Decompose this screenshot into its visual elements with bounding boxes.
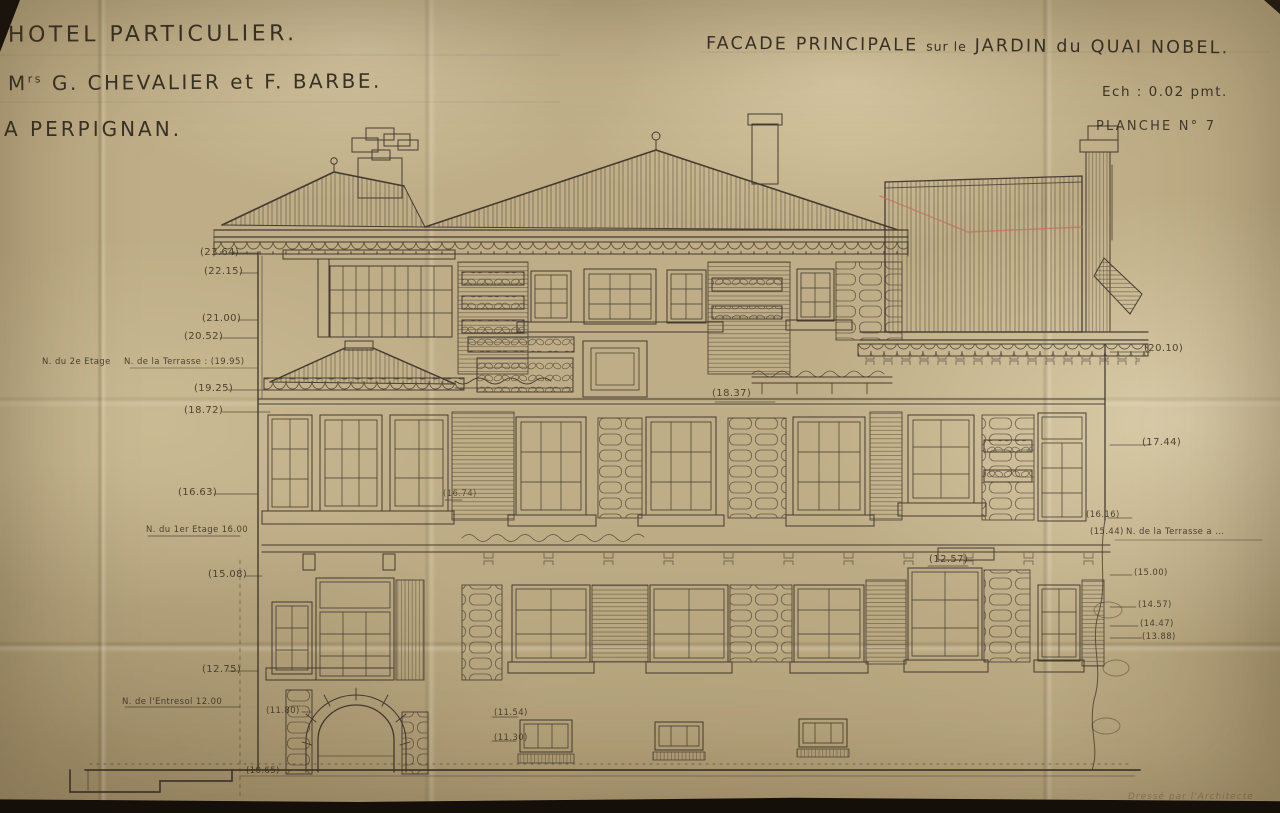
photo-vignette	[0, 0, 1280, 813]
scanned-plan-photo: HOTEL PARTICULIER. Mrs G. CHEVALIER et F…	[0, 0, 1280, 813]
